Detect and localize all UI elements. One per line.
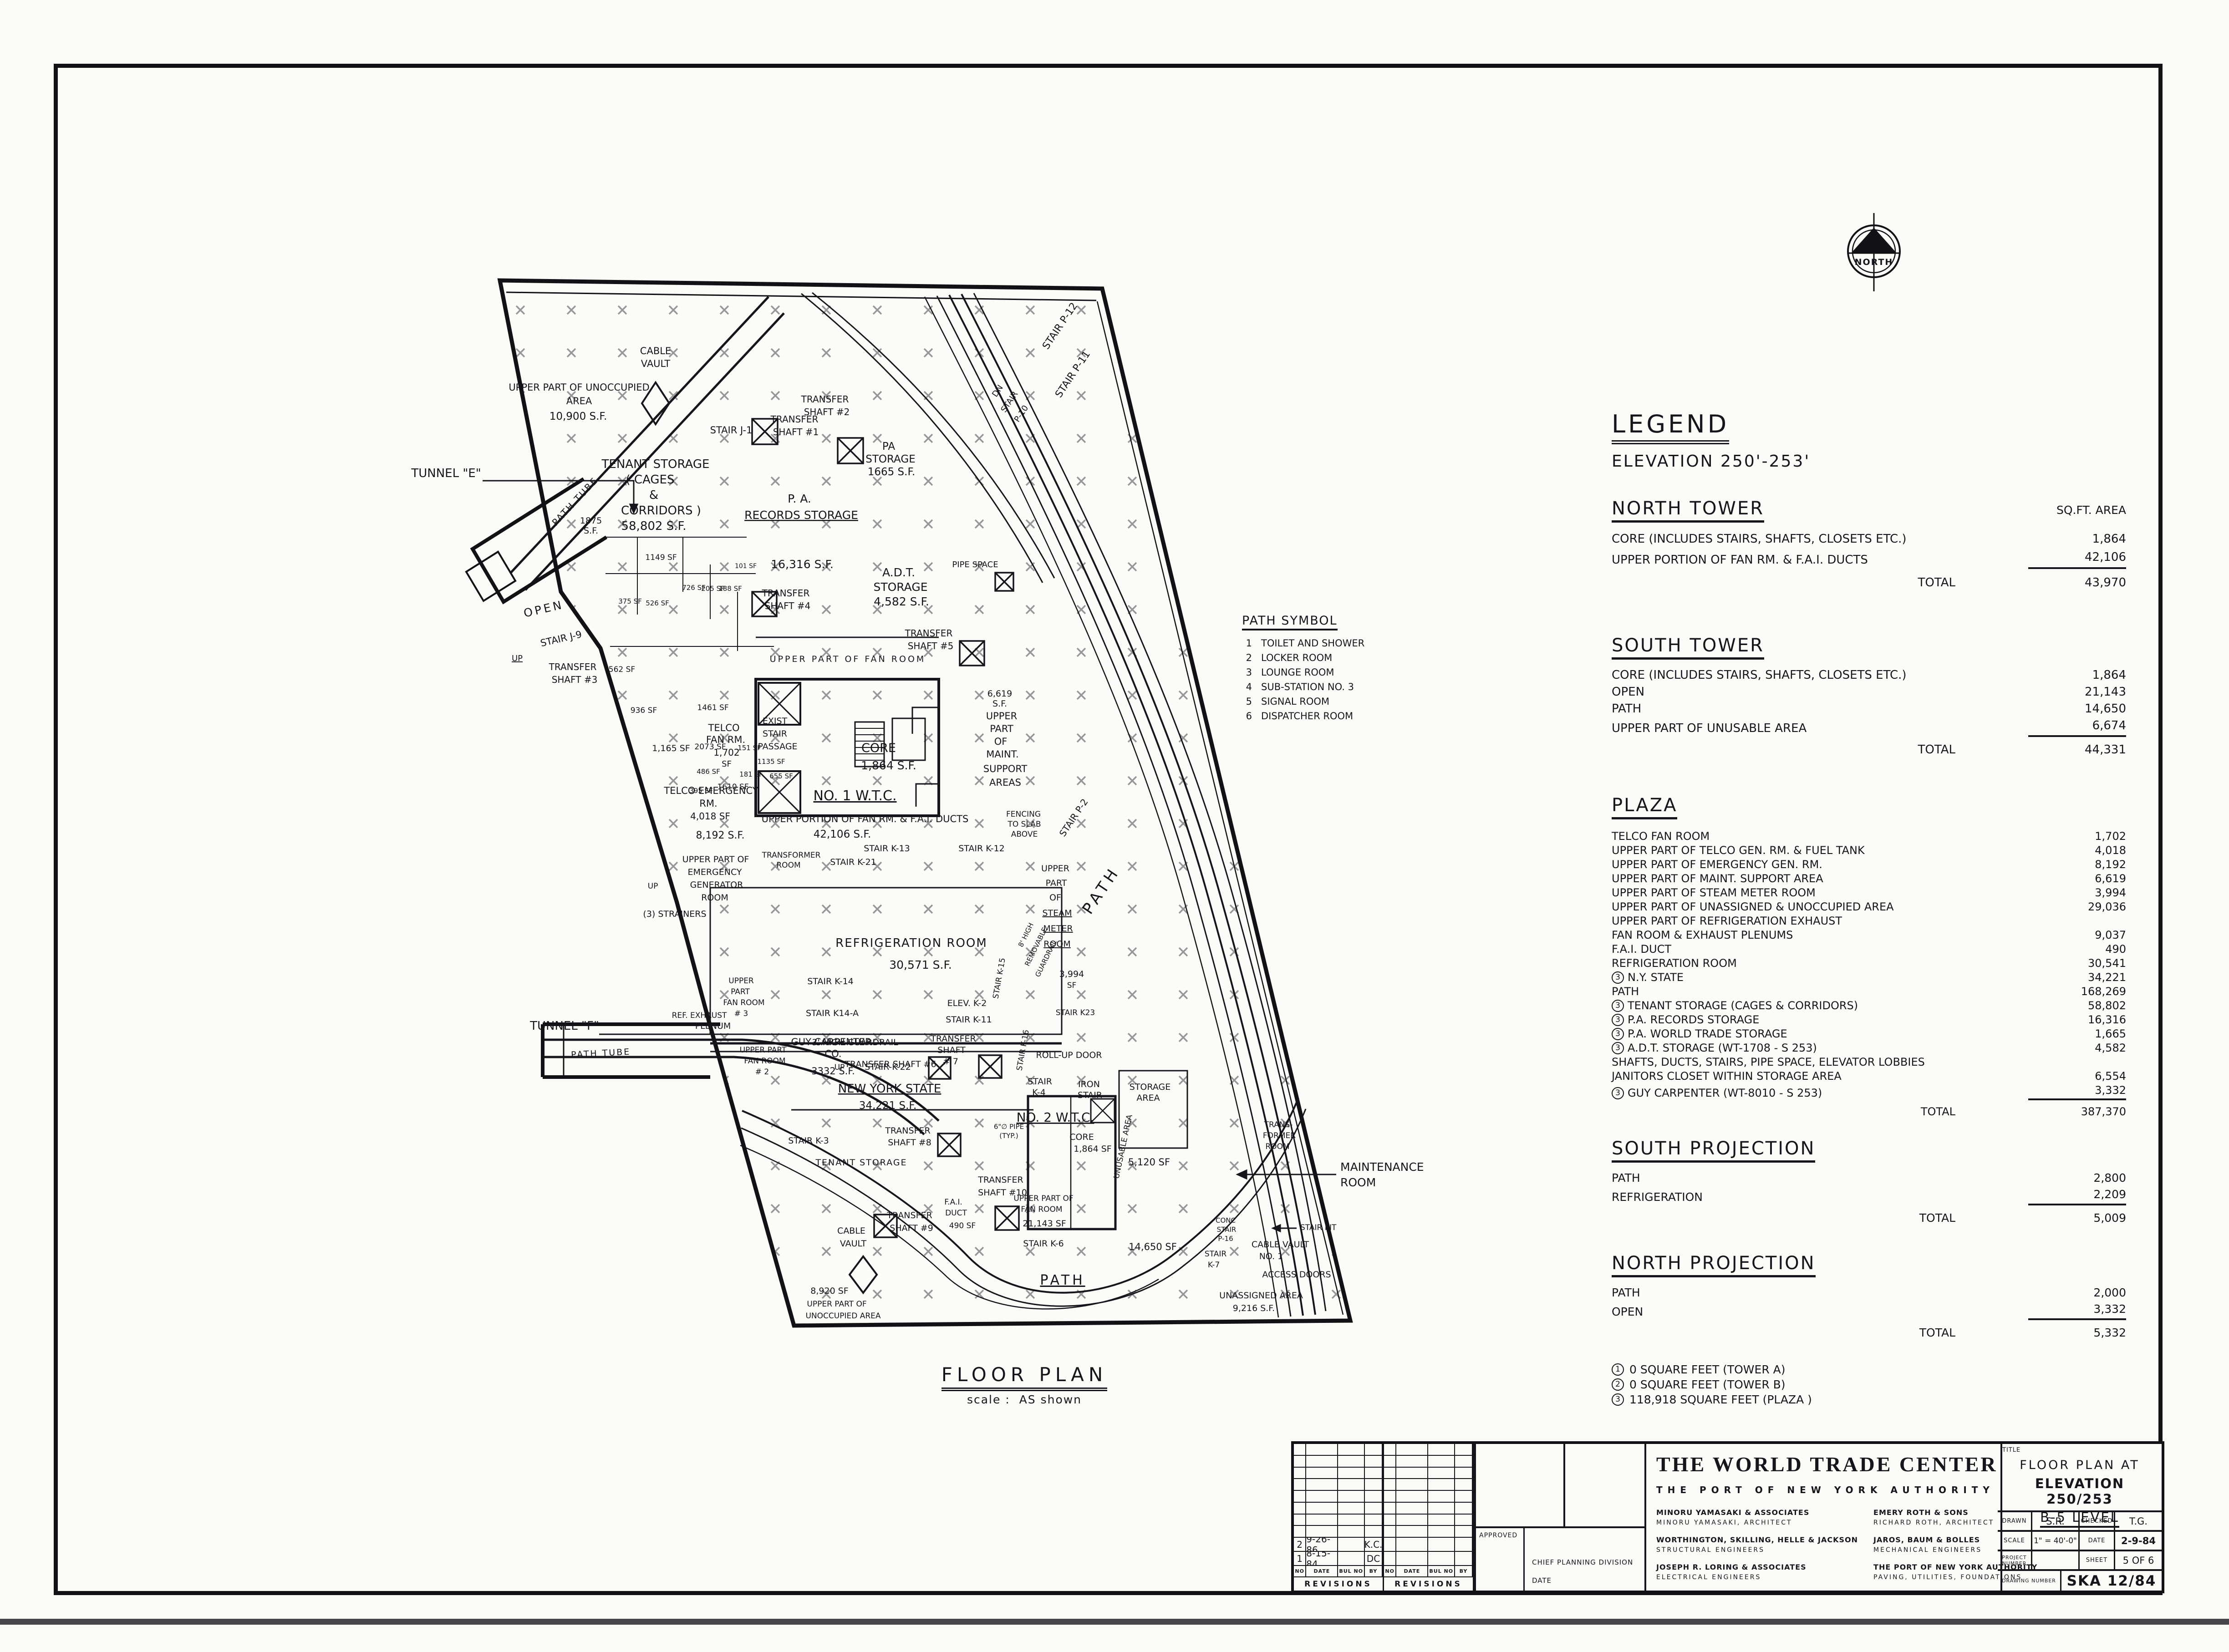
legend-row: REFRIGERATION ROOM30,541 <box>1612 956 2126 971</box>
revision-cell <box>1365 1526 1383 1538</box>
legend-row: TELCO FAN ROOM1,702 <box>1612 829 2126 844</box>
legend-section-south-projection: SOUTH PROJECTION PATH2,800REFRIGERATION2… <box>1612 1138 2126 1226</box>
revision-cell: BUL NO <box>1428 1566 1455 1577</box>
circled-number: 3 <box>1612 1000 1624 1012</box>
revisions-table-2: NODATEBUL NOBYREVISIONS <box>1384 1444 1474 1591</box>
revision-cell <box>1365 1503 1383 1515</box>
revision-cell: DC <box>1365 1552 1383 1566</box>
drawn-value: S.R. <box>2032 1512 2080 1530</box>
title-tag: TITLE <box>2002 1447 2157 1454</box>
revision-cell <box>1306 1468 1338 1479</box>
revision-cell <box>1338 1479 1365 1491</box>
revision-cell: 8-15-84 <box>1306 1552 1338 1566</box>
revision-cell: K.C. <box>1365 1538 1383 1552</box>
circled-number: 2 <box>1612 1378 1624 1391</box>
floor-plan-scale: scale : AS shown <box>906 1393 1143 1406</box>
sheet-value: 5 OF 6 <box>2115 1551 2162 1569</box>
chief-planning-cell: CHIEF PLANNING DIVISION DATE <box>1525 1526 1644 1591</box>
revision-cell: BY <box>1365 1566 1383 1577</box>
revision-cell <box>1338 1503 1365 1515</box>
revision-cell <box>1384 1503 1396 1515</box>
revision-cell: 2 <box>1294 1538 1306 1552</box>
revision-cell: 9-26-86 <box>1306 1538 1338 1552</box>
firm-entry: JOSEPH R. LORING & ASSOCIATESELECTRICAL … <box>1656 1563 1858 1581</box>
scale-value: 1" = 40'-0" <box>2032 1532 2080 1550</box>
firm-entry: MINORU YAMASAKI & ASSOCIATESMINORU YAMAS… <box>1656 1508 1858 1526</box>
revision-cell <box>1396 1503 1428 1515</box>
revision-cell <box>1306 1526 1338 1538</box>
revision-cell <box>1455 1491 1473 1503</box>
legend-row: UPPER PART OF EMERGENCY GEN. RM.8,192 <box>1612 858 2126 872</box>
revisions-caption: REVISIONS <box>1384 1577 1473 1591</box>
circled-number: 3 <box>1612 1014 1624 1026</box>
project-title: THE WORLD TRADE CENTER <box>1656 1452 1989 1476</box>
revision-cell <box>1455 1468 1473 1479</box>
revision-cell <box>1455 1552 1473 1566</box>
legend-row: UPPER PART OF TELCO GEN. RM. & FUEL TANK… <box>1612 844 2126 858</box>
revision-cell <box>1294 1456 1306 1468</box>
drawn-label: DRAWN <box>1998 1512 2032 1530</box>
revisions-caption: REVISIONS <box>1294 1577 1383 1591</box>
revision-cell <box>1338 1552 1365 1566</box>
legend-row: UPPER PORTION OF FAN RM. & F.A.I. DUCTS4… <box>1612 548 2126 569</box>
revision-cell: NO <box>1384 1566 1396 1577</box>
revision-cell <box>1455 1538 1473 1552</box>
legend-footnote: 20 SQUARE FEET (TOWER B) <box>1612 1377 2126 1392</box>
legend-row: 3A.D.T. STORAGE (WT-1708 - S 253)4,582 <box>1612 1041 2126 1055</box>
legend-row: 3N.Y. STATE34,221 <box>1612 971 2126 985</box>
drawing-title-line2: ELEVATION 250/253 <box>2002 1476 2157 1507</box>
revision-cell: BY <box>1455 1566 1473 1577</box>
legend-row: 3GUY CARPENTER (WT-8010 - S 253)3,332 <box>1612 1083 2126 1100</box>
legend-row: 3P.A. RECORDS STORAGE16,316 <box>1612 1013 2126 1027</box>
revision-cell <box>1396 1552 1428 1566</box>
legend-row: UPPER PART OF MAINT. SUPPORT AREA6,619 <box>1612 872 2126 886</box>
revision-cell <box>1428 1456 1455 1468</box>
title-info-column: TITLE FLOOR PLAN AT ELEVATION 250/253 B-… <box>1998 1444 2162 1591</box>
drawing-title-line1: FLOOR PLAN AT <box>2002 1458 2157 1472</box>
circled-number: 3 <box>1612 971 1624 984</box>
revision-cell: 1 <box>1294 1552 1306 1566</box>
revision-cell <box>1338 1515 1365 1526</box>
legend-panel: LEGEND ELEVATION 250'-253' NORTH TOWERSQ… <box>1612 410 2126 1407</box>
scale-label: SCALE <box>1998 1532 2032 1550</box>
revision-cell <box>1306 1503 1338 1515</box>
legend-row: CORE (INCLUDES STAIRS, SHAFTS, CLOSETS E… <box>1612 667 2126 684</box>
revision-cell <box>1396 1538 1428 1552</box>
revision-cell <box>1396 1515 1428 1526</box>
firm-entry: WORTHINGTON, SKILLING, HELLE & JACKSONST… <box>1656 1535 1858 1554</box>
revision-cell <box>1455 1503 1473 1515</box>
circled-number: 3 <box>1612 1087 1624 1099</box>
revision-cell <box>1384 1515 1396 1526</box>
revision-cell <box>1338 1444 1365 1456</box>
revision-cell <box>1396 1491 1428 1503</box>
revision-cell <box>1396 1468 1428 1479</box>
scan-edge-artifact <box>0 1619 2229 1625</box>
revision-cell <box>1396 1444 1428 1456</box>
revision-cell <box>1396 1526 1428 1538</box>
drawing-sheet: NORTH UPPER PART OF UNOCCUPIEDAREA10,900… <box>0 0 2229 1652</box>
circled-number: 3 <box>1612 1393 1624 1406</box>
revision-cell: DATE <box>1306 1566 1338 1577</box>
legend-row: PATH14,650 <box>1612 701 2126 717</box>
revision-cell <box>1338 1538 1365 1552</box>
revision-cell <box>1428 1552 1455 1566</box>
revision-cell <box>1294 1479 1306 1491</box>
sheet-label: SHEET <box>2080 1551 2115 1569</box>
revision-cell <box>1365 1479 1383 1491</box>
revision-cell <box>1338 1526 1365 1538</box>
approved-cell: APPROVED <box>1476 1526 1525 1591</box>
revision-cell <box>1455 1526 1473 1538</box>
legend-row: UPPER PART OF STEAM METER ROOM3,994 <box>1612 886 2126 900</box>
revision-cell <box>1294 1515 1306 1526</box>
revision-cell <box>1455 1479 1473 1491</box>
revision-cell <box>1384 1538 1396 1552</box>
revision-cell <box>1294 1503 1306 1515</box>
revision-cell <box>1428 1538 1455 1552</box>
revision-cell <box>1455 1456 1473 1468</box>
path-symbol-key: PATH SYMBOL 1TOILET AND SHOWER2LOCKER RO… <box>1242 614 1401 723</box>
revision-cell <box>1428 1444 1455 1456</box>
legend-row: 3P.A. WORLD TRADE STORAGE1,665 <box>1612 1027 2126 1041</box>
revision-cell <box>1428 1479 1455 1491</box>
revision-cell <box>1384 1491 1396 1503</box>
legend-row: 3TENANT STORAGE (CAGES & CORRIDORS)58,80… <box>1612 999 2126 1013</box>
legend-footnotes: 10 SQUARE FEET (TOWER A)20 SQUARE FEET (… <box>1612 1362 2126 1407</box>
path-symbol-items: 1TOILET AND SHOWER2LOCKER ROOM3LOUNGE RO… <box>1242 636 1401 723</box>
drawing-title-cell: TITLE FLOOR PLAN AT ELEVATION 250/253 B-… <box>1998 1444 2162 1512</box>
legend-row: SHAFTS, DUCTS, STAIRS, PIPE SPACE, ELEVA… <box>1612 1055 2126 1069</box>
legend-section-plaza: PLAZA TELCO FAN ROOM1,702UPPER PART OF T… <box>1612 795 2126 1119</box>
floor-plan-caption-title: FLOOR PLAN <box>941 1363 1108 1391</box>
revision-cell <box>1365 1444 1383 1456</box>
revision-cell: NO <box>1294 1566 1306 1577</box>
revision-cell <box>1396 1479 1428 1491</box>
revision-cell <box>1365 1468 1383 1479</box>
floor-plan-caption: FLOOR PLAN scale : AS shown <box>906 1363 1143 1406</box>
drawing-number-value: SKA 12/84 <box>2061 1571 2162 1591</box>
revision-cell: DATE <box>1396 1566 1428 1577</box>
path-symbol-item: 3LOUNGE ROOM <box>1242 665 1401 680</box>
legend-row: REFRIGERATION2,209 <box>1612 1186 2126 1205</box>
chief-planning-label: CHIEF PLANNING DIVISION <box>1532 1558 1638 1566</box>
legend-row: FAN ROOM & EXHAUST PLENUMS9,037 <box>1612 928 2126 942</box>
revisions-table-1: 29-26-86K.C.18-15-84DCNODATEBUL NOBYREVI… <box>1294 1444 1384 1591</box>
revision-cell <box>1294 1468 1306 1479</box>
revision-cell <box>1306 1444 1338 1456</box>
revision-cell <box>1294 1491 1306 1503</box>
circled-number: 3 <box>1612 1028 1624 1040</box>
legend-row: PATH2,000 <box>1612 1285 2126 1301</box>
authority-title: THE PORT OF NEW YORK AUTHORITY <box>1656 1484 1989 1495</box>
legend-section-north-tower: NORTH TOWERSQ.FT. AREA CORE (INCLUDES ST… <box>1612 498 2126 592</box>
revision-cell <box>1384 1444 1396 1456</box>
circled-number: 3 <box>1612 1042 1624 1054</box>
path-symbol-item: 1TOILET AND SHOWER <box>1242 636 1401 651</box>
legend-row: PATH2,800 <box>1612 1170 2126 1186</box>
project-number-label: PROJECT NUMBER <box>1998 1551 2032 1569</box>
legend-footnote: 3118,918 SQUARE FEET (PLAZA ) <box>1612 1392 2126 1407</box>
legend-row: JANITORS CLOSET WITHIN STORAGE AREA6,554 <box>1612 1069 2126 1083</box>
legend-row: F.A.I. DUCT490 <box>1612 942 2126 956</box>
legend-subtitle: ELEVATION 250'-253' <box>1612 452 2126 471</box>
legend-row: OPEN21,143 <box>1612 684 2126 701</box>
path-symbol-title: PATH SYMBOL <box>1242 614 1338 630</box>
revision-cell <box>1455 1515 1473 1526</box>
revision-cell <box>1306 1491 1338 1503</box>
revision-cell <box>1455 1444 1473 1456</box>
revision-cell <box>1384 1468 1396 1479</box>
legend-footnote: 10 SQUARE FEET (TOWER A) <box>1612 1362 2126 1377</box>
revision-cell <box>1428 1503 1455 1515</box>
revision-cell <box>1338 1468 1365 1479</box>
legend-row: UPPER PART OF UNASSIGNED & UNOCCUPIED AR… <box>1612 900 2126 914</box>
revision-cell <box>1306 1456 1338 1468</box>
revision-cell <box>1384 1526 1396 1538</box>
legend-row: UPPER PART OF REFRIGERATION EXHAUST <box>1612 914 2126 928</box>
title-block: 29-26-86K.C.18-15-84DCNODATEBUL NOBYREVI… <box>1291 1441 2164 1593</box>
checked-label: CHECKED <box>2080 1512 2115 1530</box>
circled-number: 1 <box>1612 1363 1624 1376</box>
legend-row: UPPER PART OF UNUSABLE AREA6,674 <box>1612 717 2126 737</box>
project-number-value <box>2032 1551 2080 1569</box>
revision-cell <box>1294 1444 1306 1456</box>
firm-list: MINORU YAMASAKI & ASSOCIATESMINORU YAMAS… <box>1656 1508 1989 1581</box>
path-symbol-item: 6DISPATCHER ROOM <box>1242 709 1401 723</box>
revision-cell <box>1384 1552 1396 1566</box>
revision-cell <box>1396 1456 1428 1468</box>
revision-cell <box>1306 1515 1338 1526</box>
legend-title: LEGEND <box>1612 410 2126 438</box>
chief-date-label: DATE <box>1532 1576 1638 1585</box>
date-label: DATE <box>2080 1532 2115 1550</box>
revision-cell <box>1338 1456 1365 1468</box>
legend-section-south-tower: SOUTH TOWER CORE (INCLUDES STAIRS, SHAFT… <box>1612 635 2126 758</box>
checked-value: T.G. <box>2115 1512 2162 1530</box>
revision-cell <box>1365 1515 1383 1526</box>
revision-cell <box>1428 1468 1455 1479</box>
legend-row: CORE (INCLUDES STAIRS, SHAFTS, CLOSETS E… <box>1612 530 2126 548</box>
revision-cell <box>1428 1515 1455 1526</box>
revision-cell: BUL NO <box>1338 1566 1365 1577</box>
legend-row: PATH168,269 <box>1612 985 2126 999</box>
date-value: 2-9-84 <box>2115 1532 2162 1550</box>
path-symbol-item: 5SIGNAL ROOM <box>1242 694 1401 709</box>
revision-cell <box>1294 1526 1306 1538</box>
path-symbol-item: 4SUB-STATION NO. 3 <box>1242 680 1401 694</box>
legend-section-north-projection: NORTH PROJECTION PATH2,000OPEN3,332 TOTA… <box>1612 1253 2126 1341</box>
revision-cell <box>1365 1456 1383 1468</box>
drawing-number-label: DRAWING NUMBER <box>1998 1571 2061 1591</box>
revision-cell <box>1384 1479 1396 1491</box>
legend-row: OPEN3,332 <box>1612 1301 2126 1320</box>
revision-cell <box>1306 1479 1338 1491</box>
firm-block: THE WORLD TRADE CENTER THE PORT OF NEW Y… <box>1644 1444 2000 1591</box>
revision-cell <box>1428 1491 1455 1503</box>
revision-cell <box>1428 1526 1455 1538</box>
path-symbol-item: 2LOCKER ROOM <box>1242 651 1401 665</box>
revision-cell <box>1384 1456 1396 1468</box>
revision-cell <box>1365 1491 1383 1503</box>
revision-cell <box>1338 1491 1365 1503</box>
